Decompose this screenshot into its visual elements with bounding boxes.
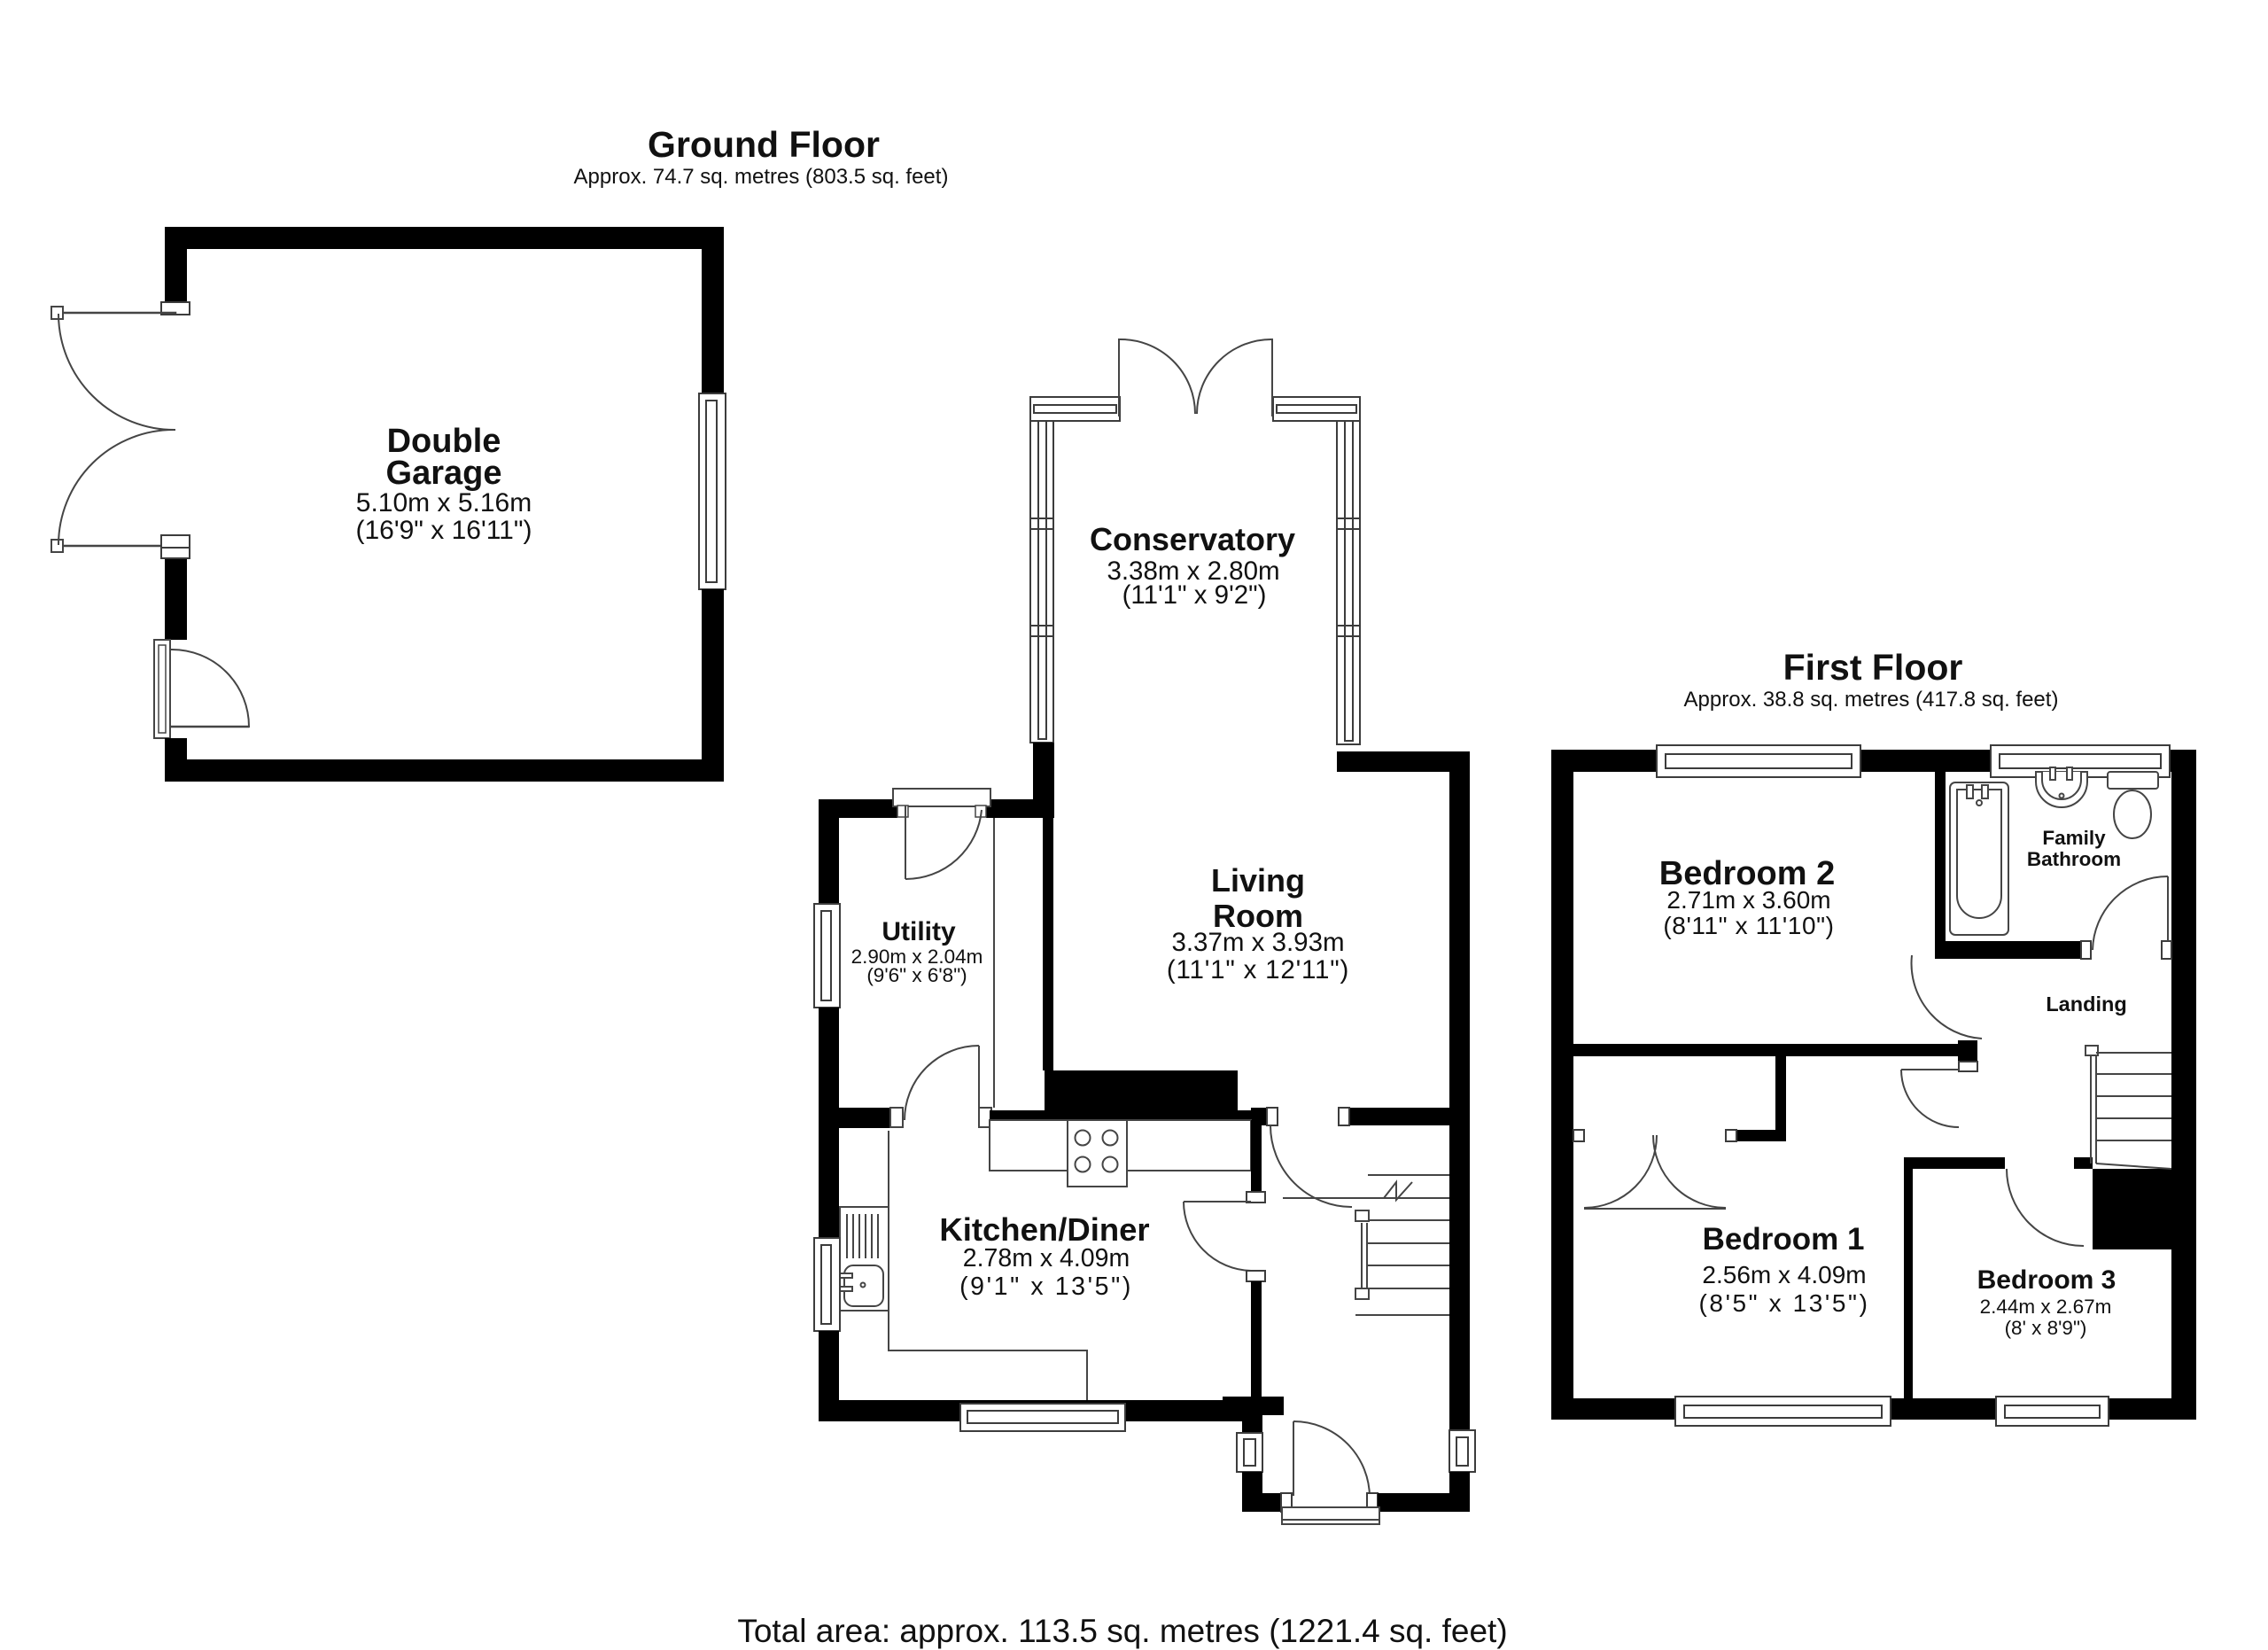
svg-text:Kitchen/Diner: Kitchen/Diner	[939, 1211, 1149, 1248]
svg-text:2.71m x 3.60m: 2.71m x 3.60m	[1666, 886, 1830, 914]
svg-text:(8'5" x 13'5"): (8'5" x 13'5")	[1698, 1289, 1869, 1317]
svg-text:(8'11" x 11'10"): (8'11" x 11'10")	[1663, 912, 1834, 939]
svg-text:Bathroom: Bathroom	[2027, 848, 2121, 870]
svg-text:(9'1" x 13'5"): (9'1" x 13'5")	[959, 1273, 1133, 1301]
svg-text:(16'9" x 16'11"): (16'9" x 16'11")	[356, 516, 532, 545]
svg-text:Bedroom 3: Bedroom 3	[1977, 1265, 2117, 1295]
svg-text:First Floor: First Floor	[1783, 647, 1963, 688]
svg-text:Ground Floor: Ground Floor	[648, 124, 880, 165]
svg-text:Approx. 74.7 sq. metres (803.5: Approx. 74.7 sq. metres (803.5 sq. feet)	[574, 165, 949, 189]
svg-text:Utility: Utility	[882, 917, 956, 946]
svg-text:Bedroom 1: Bedroom 1	[1703, 1222, 1865, 1257]
svg-text:(11'1" x 9'2"): (11'1" x 9'2")	[1122, 580, 1267, 610]
svg-text:2.44m x 2.67m: 2.44m x 2.67m	[1980, 1296, 2112, 1318]
svg-text:Conservatory: Conservatory	[1090, 521, 1295, 557]
svg-text:(8' x 8'9"): (8' x 8'9")	[2005, 1317, 2087, 1339]
svg-text:3.37m x 3.93m: 3.37m x 3.93m	[1171, 928, 1344, 957]
svg-text:Approx. 38.8 sq. metres (417.8: Approx. 38.8 sq. metres (417.8 sq. feet)	[1684, 688, 2059, 712]
svg-text:2.78m x 4.09m: 2.78m x 4.09m	[963, 1244, 1130, 1273]
svg-text:Living: Living	[1211, 862, 1305, 899]
svg-text:5.10m x 5.16m: 5.10m x 5.16m	[356, 488, 532, 518]
svg-text:Total area: approx. 113.5 sq.: Total area: approx. 113.5 sq. metres (12…	[737, 1613, 1507, 1649]
svg-text:Family: Family	[2042, 827, 2106, 849]
svg-text:(9'6" x 6'8"): (9'6" x 6'8")	[866, 964, 967, 986]
svg-text:Garage: Garage	[386, 455, 502, 492]
svg-text:Landing: Landing	[2046, 992, 2126, 1016]
svg-text:2.56m x 4.09m: 2.56m x 4.09m	[1702, 1261, 1866, 1288]
svg-text:(11'1" x 12'11"): (11'1" x 12'11")	[1167, 955, 1349, 985]
